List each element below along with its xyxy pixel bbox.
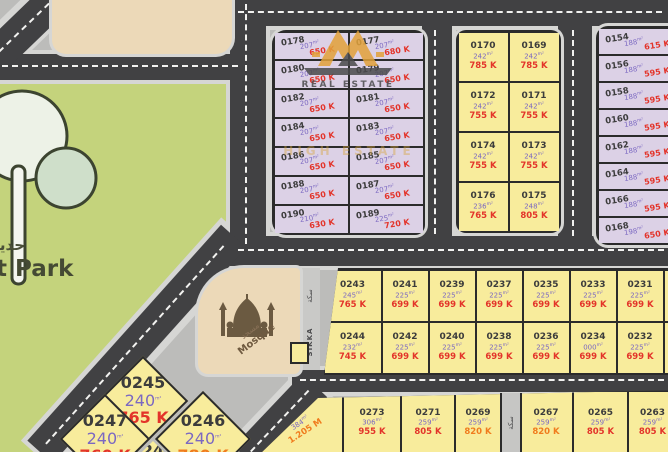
plot-area: 242m² xyxy=(473,153,493,161)
plot-0181[interactable]: 0181207m²650 K xyxy=(350,90,423,117)
plot-area: 259m² xyxy=(468,419,488,427)
plot-area: 188m² xyxy=(623,64,644,75)
plot-number: 0263 xyxy=(640,409,665,418)
plot-area: 188m² xyxy=(623,172,644,183)
plot-0174[interactable]: 0174242m²755 K xyxy=(459,133,508,181)
plot-0238[interactable]: 0238225m²699 K xyxy=(477,323,522,373)
plot-price: 755 K xyxy=(469,112,496,121)
plot-price: 650 K xyxy=(383,132,410,144)
plot-number: 0239 xyxy=(439,281,464,290)
plot-number: 0269 xyxy=(465,409,490,418)
plot-number: 0242 xyxy=(392,333,417,342)
plot-0267[interactable]: 0267259m²820 K xyxy=(520,392,572,452)
plot-price: 760 K xyxy=(79,448,130,452)
plot-area: 225m² xyxy=(489,344,509,352)
plot-area: 225m² xyxy=(583,292,603,300)
plot-number: 0232 xyxy=(627,333,652,342)
plot-area: 240m² xyxy=(87,431,124,448)
plot-price: 699 K xyxy=(485,301,512,310)
plot-price: 630 K xyxy=(308,219,335,231)
lane-marking xyxy=(245,4,247,244)
plot-price: 699 K xyxy=(532,353,559,362)
plot-area: 259m² xyxy=(536,419,556,427)
plot-number: 0175 xyxy=(521,192,546,201)
lane-marking xyxy=(238,249,664,251)
plot-area: 225m² xyxy=(395,292,415,300)
plot-0235[interactable]: 0235225m²699 K xyxy=(524,271,569,321)
plot-area: 242m² xyxy=(524,153,544,161)
plot-number: 0171 xyxy=(521,92,546,101)
plot-area: 188m² xyxy=(623,37,644,48)
plot-0240[interactable]: 0240225m²699 K xyxy=(430,323,475,373)
plot-price: 595 K xyxy=(643,147,668,159)
plot-number: 0170 xyxy=(470,42,495,51)
park-name-arabic: حديقـ xyxy=(0,236,70,254)
lane-marking xyxy=(434,30,436,234)
plot-0170[interactable]: 0170242m²785 K xyxy=(459,33,508,81)
plot-price: 765 K xyxy=(339,301,366,310)
sikka-label-arabic: سكة xyxy=(306,289,314,302)
plot-0239[interactable]: 0239225m²699 K xyxy=(430,271,475,321)
plot-area: 000m² xyxy=(583,344,603,352)
plot-area: 225m² xyxy=(630,292,650,300)
plot-0187[interactable]: 0187207m²650 K xyxy=(350,177,423,204)
plot-price: 650 K xyxy=(308,132,335,144)
plot-0242[interactable]: 0242225m²699 K xyxy=(383,323,428,373)
plot-price: 805 K xyxy=(587,428,614,437)
plot-0164[interactable]: 0164188m²595 K xyxy=(599,164,668,189)
park-name: t Park xyxy=(0,256,73,282)
plot-number: 0240 xyxy=(439,333,464,342)
plot-area: 225m² xyxy=(442,344,462,352)
plot-area: 225m² xyxy=(630,344,650,352)
plot-price: 650 K xyxy=(383,190,410,202)
plot-price: 595 K xyxy=(643,93,668,105)
plot-area: 242m² xyxy=(473,53,493,61)
plot-0172[interactable]: 0172242m²755 K xyxy=(459,83,508,131)
plot-number: 0265 xyxy=(588,409,613,418)
plot-0237[interactable]: 0237225m²699 K xyxy=(477,271,522,321)
plot-price: 755 K xyxy=(520,112,547,121)
plot-number: 0244 xyxy=(340,333,365,342)
plot-area: 225m² xyxy=(536,344,556,352)
plot-number: 0176 xyxy=(470,192,495,201)
plot-price: 595 K xyxy=(643,120,668,132)
plot-area: 225m² xyxy=(442,292,462,300)
plot-number: 0235 xyxy=(533,281,558,290)
plot-price: 955 K xyxy=(358,428,385,437)
plot-0229[interactable]: 0229225m²699 K xyxy=(665,271,668,321)
plot-area: 198m² xyxy=(623,226,644,237)
block-0229-0244: 0243245m²765 K0241225m²699 K0239225m²699… xyxy=(322,268,668,375)
plot-0179[interactable]: 0179207m²650 K xyxy=(350,61,423,88)
lane-marking xyxy=(2,65,238,67)
plot-number: 0174 xyxy=(470,142,495,151)
plot-number: 0233 xyxy=(580,281,605,290)
plot-number: 0267 xyxy=(533,409,558,418)
plot-area: 242m² xyxy=(524,103,544,111)
road-vertical-3 xyxy=(558,26,592,240)
plot-price: 765 K xyxy=(469,212,496,221)
plot-price: 805 K xyxy=(520,212,547,221)
plot-price: 595 K xyxy=(643,201,668,213)
plot-0160[interactable]: 0160188m²595 K xyxy=(599,110,668,135)
plot-number: 0172 xyxy=(470,92,495,101)
block-0169-0176: 0170242m²785 K0169242m²785 K0172242m²755… xyxy=(456,30,561,233)
plot-0232[interactable]: 0232225m²699 K xyxy=(618,323,663,373)
plot-0158[interactable]: 0158188m²595 K xyxy=(599,83,668,108)
plot-price: 699 K xyxy=(391,301,418,310)
plot-0166[interactable]: 0166188m²595 K xyxy=(599,191,668,216)
plot-area: 240m² xyxy=(125,393,162,410)
plot-price: 650 K xyxy=(308,74,335,86)
plot-0168[interactable]: 0168198m²650 K xyxy=(599,218,668,243)
plot-price: 785 K xyxy=(469,62,496,71)
sikka-label-arabic: سكة xyxy=(507,416,515,429)
plot-price: 699 K xyxy=(532,301,559,310)
plot-area: 240m² xyxy=(185,431,222,448)
plot-price: 699 K xyxy=(485,353,512,362)
plot-0182[interactable]: 0182207m²650 K xyxy=(275,90,348,117)
plot-price: 699 K xyxy=(579,353,606,362)
plot-0236[interactable]: 0236225m²699 K xyxy=(524,323,569,373)
plot-price: 755 K xyxy=(469,162,496,171)
plot-0162[interactable]: 0162188m²595 K xyxy=(599,137,668,162)
plot-number: 0246 xyxy=(181,413,226,430)
plot-price: 650 K xyxy=(308,190,335,202)
plot-0171[interactable]: 0171242m²755 K xyxy=(510,83,559,131)
plot-area: 242m² xyxy=(473,103,493,111)
road-park-top xyxy=(0,54,252,80)
plot-0263[interactable]: 0263259m²805 K xyxy=(629,392,668,452)
plot-price: 699 K xyxy=(626,353,653,362)
plot-0190[interactable]: 0190210m²630 K xyxy=(275,206,348,233)
plot-area: 225m² xyxy=(536,292,556,300)
plot-price: 650 K xyxy=(643,228,668,240)
plot-0154[interactable]: 0154188m²615 K xyxy=(599,29,668,54)
plot-area: 248m² xyxy=(524,203,544,211)
plot-0243[interactable]: 0243245m²765 K xyxy=(325,271,381,321)
plot-0265[interactable]: 0265259m²805 K xyxy=(574,392,627,452)
plot-number: 0245 xyxy=(121,375,166,392)
plot-0175[interactable]: 0175248m²805 K xyxy=(510,183,559,231)
plot-0271[interactable]: 0271259m²805 K xyxy=(402,392,454,452)
plot-number: 0271 xyxy=(415,409,440,418)
plot-0189[interactable]: 0189225m²720 K xyxy=(350,206,423,233)
plot-price: 805 K xyxy=(639,428,666,437)
block-0177-0190: 0178207m²650 K0177207m²680 K0180207m²650… xyxy=(272,30,425,235)
plot-0231[interactable]: 0231225m²699 K xyxy=(618,271,663,321)
unlabeled-parcel xyxy=(52,0,232,54)
plot-0185[interactable]: 0185207m²650 K xyxy=(350,148,423,175)
plot-number: 0273 xyxy=(359,409,384,418)
plot-0173[interactable]: 0173242m²755 K xyxy=(510,133,559,181)
plot-area: 259m² xyxy=(591,419,611,427)
plot-number: 0241 xyxy=(392,281,417,290)
road-top xyxy=(230,0,668,26)
plot-0180[interactable]: 0180207m²650 K xyxy=(275,61,348,88)
plot-price: 780 K xyxy=(177,448,228,452)
plot-number: 0234 xyxy=(580,333,605,342)
plot-0273[interactable]: 0273306m²955 K xyxy=(344,392,400,452)
plot-0176[interactable]: 0176236m²765 K xyxy=(459,183,508,231)
road-vertical-1 xyxy=(230,0,266,266)
plot-0233[interactable]: 0233225m²699 K xyxy=(571,271,616,321)
plot-number: 0247 xyxy=(83,413,128,430)
plot-price: 650 K xyxy=(308,161,335,173)
small-corner-plot[interactable] xyxy=(290,342,309,364)
plot-area: 259m² xyxy=(643,419,663,427)
plot-number: 0236 xyxy=(533,333,558,342)
plot-0169[interactable]: 0169242m²785 K xyxy=(510,33,559,81)
road-vertical-2 xyxy=(422,26,452,238)
plot-price: 595 K xyxy=(643,174,668,186)
plot-price: 805 K xyxy=(414,428,441,437)
plot-0244[interactable]: 0244232m²745 K xyxy=(325,323,381,373)
plot-price: 820 K xyxy=(464,428,491,437)
plot-area: 232m² xyxy=(343,344,363,352)
plot-price: 699 K xyxy=(391,353,418,362)
plot-area: 188m² xyxy=(623,199,644,210)
plot-area: 188m² xyxy=(623,118,644,129)
plot-number: 0243 xyxy=(340,281,365,290)
plot-number: 0173 xyxy=(521,142,546,151)
plot-number: 0237 xyxy=(486,281,511,290)
plot-price: 650 K xyxy=(308,45,335,57)
plot-price: 699 K xyxy=(626,301,653,310)
plot-price: 615 K xyxy=(643,39,668,51)
block-0261-0275: 0275384m²1.205 M0273306m²955 K0271259m²8… xyxy=(256,390,668,452)
plot-0178[interactable]: 0178207m²650 K xyxy=(275,33,348,60)
plot-0156[interactable]: 0156188m²595 K xyxy=(599,56,668,81)
plot-price: 650 K xyxy=(383,161,410,173)
plot-price: 785 K xyxy=(520,62,547,71)
plot-price: 720 K xyxy=(383,219,410,231)
plot-price: 680 K xyxy=(383,45,410,57)
plot-price: 820 K xyxy=(532,428,559,437)
lane-marking xyxy=(238,11,662,13)
plot-0186[interactable]: 0186207m²650 K xyxy=(275,148,348,175)
plot-price: 699 K xyxy=(438,353,465,362)
plot-price: 699 K xyxy=(579,301,606,310)
plot-0234[interactable]: 0234000m²699 K xyxy=(571,323,616,373)
plot-area: 188m² xyxy=(623,91,644,102)
plot-price: 595 K xyxy=(643,66,668,78)
plot-0188[interactable]: 0188207m²650 K xyxy=(275,177,348,204)
plot-0183[interactable]: 0183207m²650 K xyxy=(350,119,423,146)
plot-number: 0238 xyxy=(486,333,511,342)
block-0154-0168: 0154188m²615 K0156188m²595 K0158188m²595… xyxy=(596,26,668,245)
plot-0269[interactable]: 0269259m²820 K xyxy=(456,392,500,452)
plot-area: 306m² xyxy=(362,419,382,427)
plot-number: 0169 xyxy=(521,42,546,51)
plot-map-canvas: حديقـ t Park 0178207m²650 K0177207m²680 … xyxy=(0,0,668,452)
plot-price: 650 K xyxy=(383,74,410,86)
plot-area: 225m² xyxy=(489,292,509,300)
plot-number: 0231 xyxy=(627,281,652,290)
plot-0241[interactable]: 0241225m²699 K xyxy=(383,271,428,321)
plot-price: 650 K xyxy=(308,103,335,115)
plot-0230[interactable]: 0230225m²699 K xyxy=(665,323,668,373)
plot-price: 650 K xyxy=(383,103,410,115)
plot-area: 236m² xyxy=(473,203,493,211)
plot-area: 225m² xyxy=(395,344,415,352)
plot-area: 245m² xyxy=(343,292,363,300)
plot-area: 259m² xyxy=(418,419,438,427)
plot-area: 242m² xyxy=(524,53,544,61)
sikka-alley-bottom: سكة xyxy=(500,393,522,452)
lane-marking xyxy=(300,379,664,381)
plot-price: 699 K xyxy=(438,301,465,310)
lane-marking xyxy=(572,30,574,236)
plot-price: 755 K xyxy=(520,162,547,171)
plot-0177[interactable]: 0177207m²680 K xyxy=(350,33,423,60)
plot-area: 188m² xyxy=(623,145,644,156)
plot-0184[interactable]: 0184207m²650 K xyxy=(275,119,348,146)
plot-price: 745 K xyxy=(339,353,366,362)
